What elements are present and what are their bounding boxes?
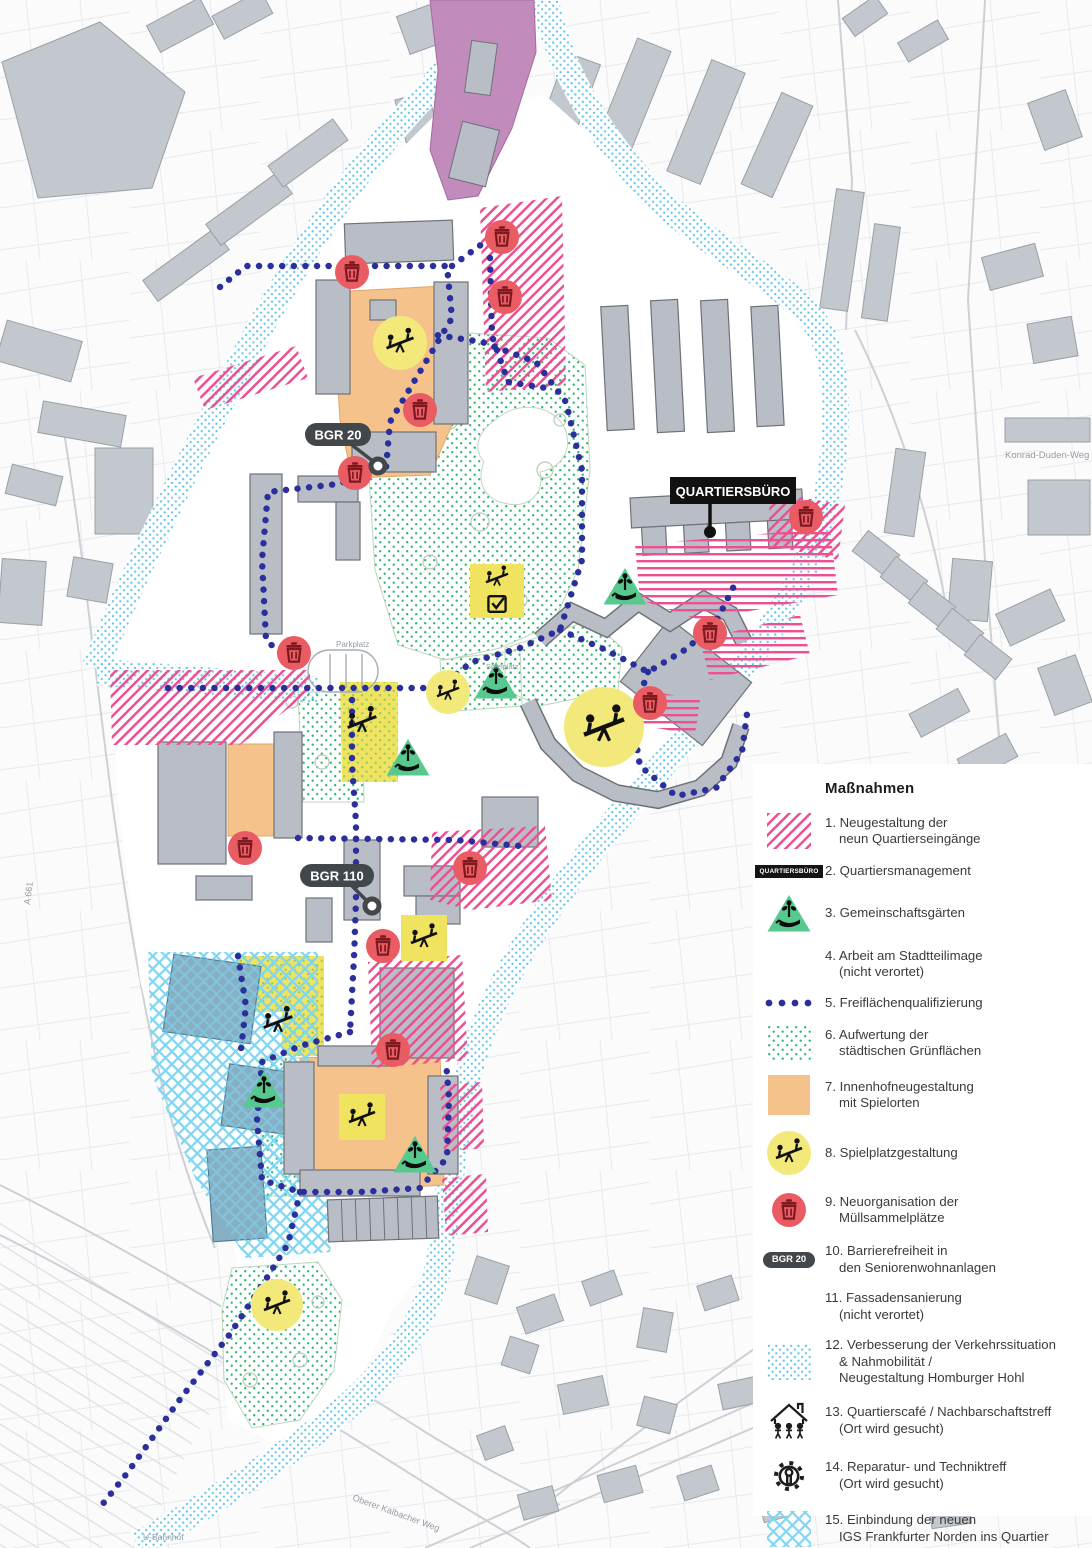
legend-text-1: 1. Neugestaltung derneun Quartierseingän…	[825, 815, 981, 848]
garden-triangle-icon	[768, 895, 811, 932]
legend-text-13: 13. Quartierscafé / Nachbarschaftstreff(…	[825, 1404, 1051, 1437]
legend-line: 13. Quartierscafé / Nachbarschaftstreff	[825, 1404, 1051, 1421]
legend-title: Maßnahmen	[825, 780, 1086, 797]
waste-collection-marker	[693, 616, 727, 650]
legend-text-5: 5. Freiflächenqualifizierung	[825, 995, 983, 1012]
legend-text-6: 6. Aufwertung derstädtischen Grünflächen	[825, 1027, 981, 1060]
legend-item-3: 3. Gemeinschaftsgärten	[753, 894, 1086, 934]
legend-line: 10. Barrierefreiheit in	[825, 1243, 996, 1260]
bgr-pill: BGR 20	[763, 1252, 815, 1268]
legend-line: 15. Einbindung der neuen	[825, 1512, 1049, 1529]
cyan-dots-swatch	[767, 1344, 811, 1380]
waste-collection-marker	[376, 1033, 410, 1067]
waste-collection-marker	[366, 929, 400, 963]
legend-item-11: 11. Fassadensanierung(nicht verortet)	[753, 1290, 1086, 1323]
legend-line: IGS Frankfurter Norden ins Quartier	[825, 1529, 1049, 1546]
legend-line: (nicht verortet)	[825, 1307, 962, 1324]
legend-icon-13	[753, 1401, 825, 1441]
quartiersbuero-pill: QUARTIERSBÜRO	[755, 865, 822, 878]
trash-icon	[772, 1193, 806, 1227]
legend-item-8: 8. Spielplatzgestaltung	[753, 1129, 1086, 1177]
pink-hatch-swatch	[767, 813, 811, 849]
waste-collection-marker	[403, 393, 437, 427]
legend-item-7: 7. Innenhofneugestaltungmit Spielorten	[753, 1075, 1086, 1115]
quartiersbuero-label: QUARTIERSBÜRO	[676, 484, 791, 499]
legend-text-9: 9. Neuorganisation derMüllsammelplätze	[825, 1194, 958, 1227]
legend-item-4: 4. Arbeit am Stadtteilimage(nicht verort…	[753, 948, 1086, 981]
waste-collection-marker	[485, 220, 519, 254]
legend-line: (Ort wird gesucht)	[825, 1476, 1006, 1493]
legend-line: 3. Gemeinschaftsgärten	[825, 905, 965, 922]
legend-text-7: 7. Innenhofneugestaltungmit Spielorten	[825, 1079, 974, 1112]
legend-item-15: 15. Einbindung der neuenIGS Frankfurter …	[753, 1511, 1086, 1547]
green-dots-swatch	[767, 1025, 811, 1061]
waste-collection-marker	[488, 280, 522, 314]
legend-item-10: BGR 2010. Barrierefreiheit inden Seniore…	[753, 1243, 1086, 1276]
legend-text-4: 4. Arbeit am Stadtteilimage(nicht verort…	[825, 948, 983, 981]
legend-line: 4. Arbeit am Stadtteilimage	[825, 948, 983, 965]
legend-line: 12. Verbesserung der Verkehrssituation	[825, 1337, 1056, 1354]
legend-icon-6	[753, 1025, 825, 1061]
legend-line: Neugestaltung Homburger Hohl	[825, 1370, 1056, 1387]
legend-item-2: QUARTIERSBÜRO2. Quartiersmanagement	[753, 863, 1086, 880]
spielplatz-label: Spielplatz	[486, 662, 519, 671]
waste-collection-marker	[338, 456, 372, 490]
legend-text-14: 14. Reparatur- und Techniktreff(Ort wird…	[825, 1459, 1006, 1492]
legend-text-8: 8. Spielplatzgestaltung	[825, 1145, 958, 1162]
parkplatz-label: Parkplatz	[336, 640, 369, 649]
legend-item-14: 14. Reparatur- und Techniktreff(Ort wird…	[753, 1455, 1086, 1497]
legend-text-15: 15. Einbindung der neuenIGS Frankfurter …	[825, 1512, 1049, 1545]
legend-item-5: 5. Freiflächenqualifizierung	[753, 995, 1086, 1012]
repair-gear-icon	[776, 1463, 802, 1489]
legend-line: den Seniorenwohnanlagen	[825, 1260, 996, 1277]
legend-text-10: 10. Barrierefreiheit inden Seniorenwohna…	[825, 1243, 996, 1276]
legend-line: 8. Spielplatzgestaltung	[825, 1145, 958, 1162]
legend-icon-8	[753, 1129, 825, 1177]
legend-line: 14. Reparatur- und Techniktreff	[825, 1459, 1006, 1476]
legend-icon-14	[753, 1455, 825, 1497]
legend-item-9: 9. Neuorganisation derMüllsammelplätze	[753, 1191, 1086, 1229]
waste-collection-marker	[335, 255, 369, 289]
legend-icon-5	[753, 997, 825, 1009]
legend-line: 5. Freiflächenqualifizierung	[825, 995, 983, 1012]
legend-icon-10: BGR 20	[753, 1252, 825, 1268]
legend-text-3: 3. Gemeinschaftsgärten	[825, 905, 965, 922]
waste-collection-marker	[633, 686, 667, 720]
legend-line: (nicht verortet)	[825, 964, 983, 981]
legend-item-1: 1. Neugestaltung derneun Quartierseingän…	[753, 813, 1086, 849]
legend-icon-3	[753, 894, 825, 934]
blue-dots-icon	[766, 999, 812, 1006]
legend-line: 2. Quartiersmanagement	[825, 863, 971, 880]
bgr20-label: BGR 20	[315, 428, 362, 443]
legend-icon-7	[753, 1075, 825, 1115]
waste-collection-marker	[277, 636, 311, 670]
legend-line: (Ort wird gesucht)	[825, 1421, 1051, 1438]
waste-collection-marker	[228, 831, 262, 865]
waste-collection-marker	[453, 851, 487, 885]
legend-line: mit Spielorten	[825, 1095, 974, 1112]
playground-square-planned	[470, 564, 524, 618]
orange-swatch	[768, 1075, 810, 1115]
bgr110-label: BGR 110	[310, 869, 363, 884]
legend-icon-2: QUARTIERSBÜRO	[753, 865, 825, 878]
legend-line: 1. Neugestaltung der	[825, 815, 981, 832]
legend-panel: Maßnahmen 1. Neugestaltung derneun Quart…	[753, 764, 1092, 1516]
waste-collection-marker	[789, 500, 823, 534]
legend-line: Müllsammelplätze	[825, 1210, 958, 1227]
neighbourhood-cafe-icon	[771, 1404, 807, 1438]
legend-text-12: 12. Verbesserung der Verkehrssituation& …	[825, 1337, 1056, 1387]
cyan-cross-swatch	[767, 1511, 811, 1547]
legend-item-13: 13. Quartierscafé / Nachbarschaftstreff(…	[753, 1401, 1086, 1441]
urban-plan-screenshot: BGR 20 BGR 110 QUARTIERSBÜRO Konrad-Dude…	[0, 0, 1092, 1548]
legend-item-6: 6. Aufwertung derstädtischen Grünflächen	[753, 1025, 1086, 1061]
legend-text-11: 11. Fassadensanierung(nicht verortet)	[825, 1290, 962, 1323]
legend-line: 11. Fassadensanierung	[825, 1290, 962, 1307]
legend-icon-12	[753, 1344, 825, 1380]
legend-icon-1	[753, 813, 825, 849]
legend-line: 6. Aufwertung der	[825, 1027, 981, 1044]
legend-line: neun Quartierseingänge	[825, 831, 981, 848]
legend-line: & Nahmobilität /	[825, 1354, 1056, 1371]
legend-line: 7. Innenhofneugestaltung	[825, 1079, 974, 1096]
legend-line: 9. Neuorganisation der	[825, 1194, 958, 1211]
street-konrad-duden-weg: Konrad-Duden-Weg	[1005, 450, 1089, 461]
legend-icon-9	[753, 1191, 825, 1229]
legend-item-12: 12. Verbesserung der Verkehrssituation& …	[753, 1337, 1086, 1387]
legend-icon-15	[753, 1511, 825, 1547]
legend-line: städtischen Grünflächen	[825, 1043, 981, 1060]
ubahnhof-label: U-Bahnhof	[143, 1532, 184, 1542]
legend-text-2: 2. Quartiersmanagement	[825, 863, 971, 880]
